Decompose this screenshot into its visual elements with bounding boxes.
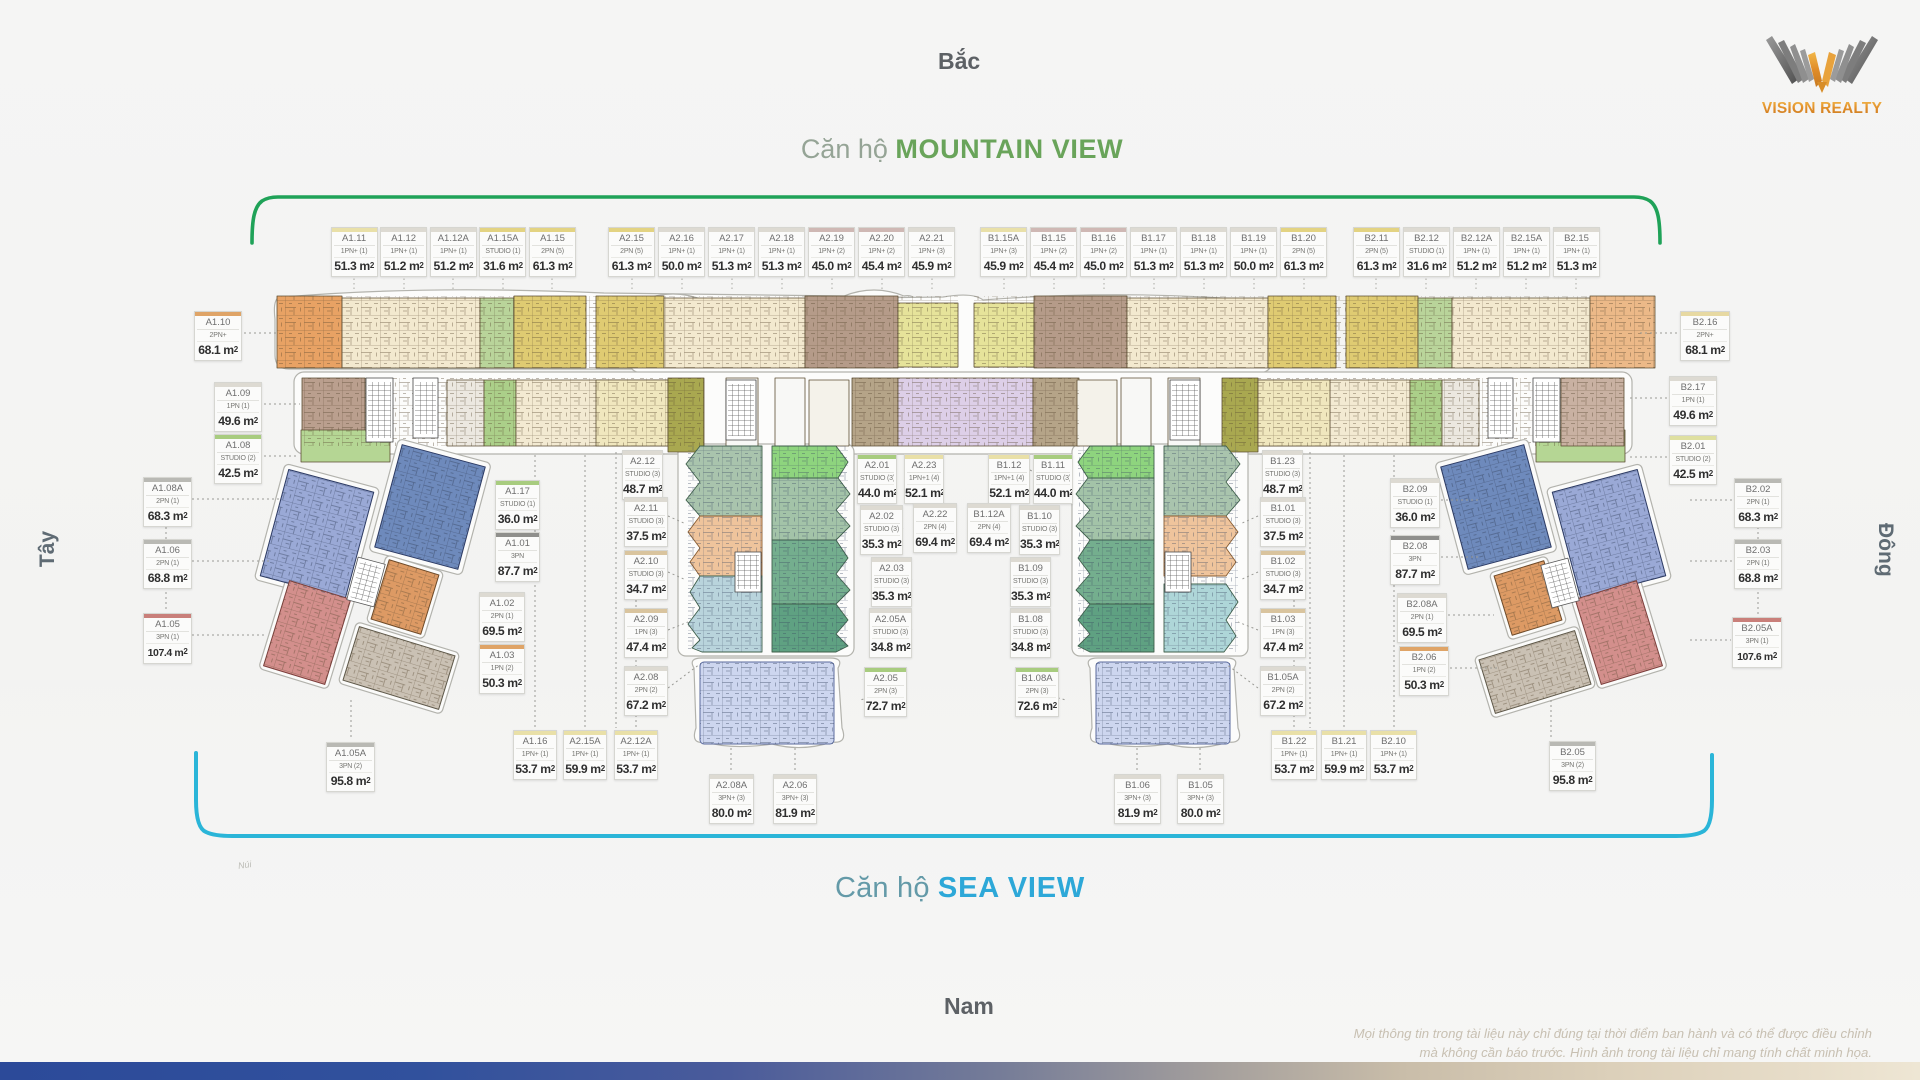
- svg-text:VISION REALTY: VISION REALTY: [1762, 100, 1883, 117]
